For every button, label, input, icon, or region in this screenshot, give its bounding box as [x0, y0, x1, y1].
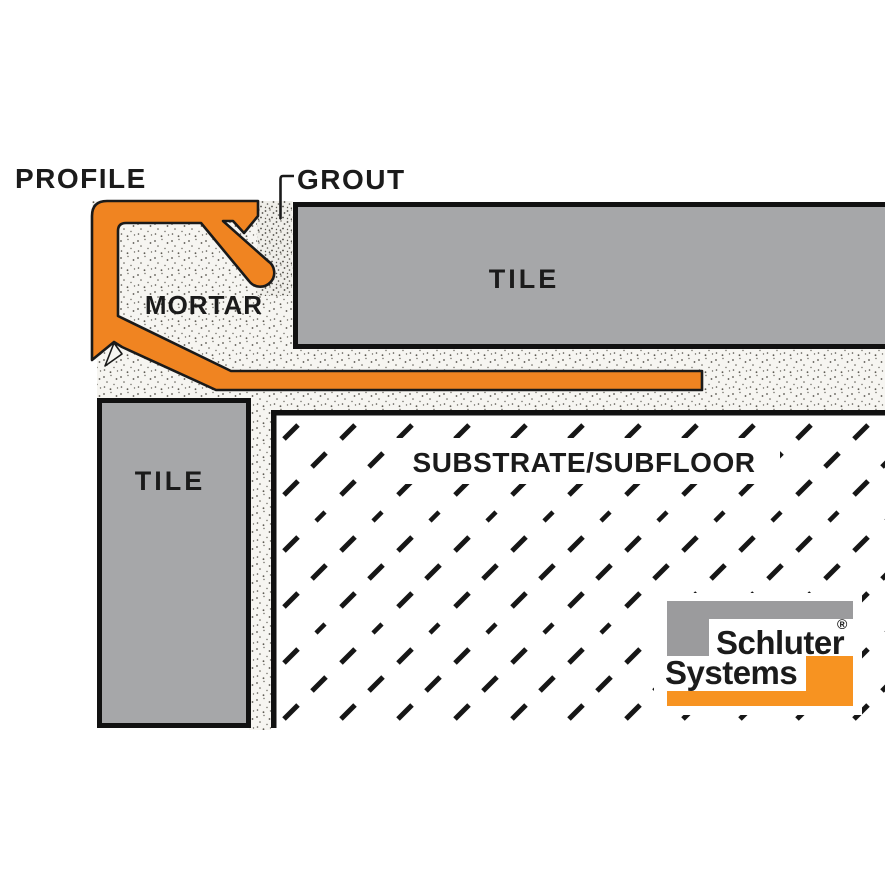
tile-left-label: TILE [135, 466, 206, 496]
tile-top: TILE [296, 205, 885, 347]
schluter-logo: Schluter ® Systems [654, 593, 862, 715]
tile-top-label: TILE [489, 264, 560, 294]
tile-left: TILE [100, 401, 249, 726]
installation-diagram: TILE TILE PROFILE GROUT MORTAR SUBSTRATE… [0, 0, 885, 885]
profile-label: PROFILE [15, 163, 147, 194]
grout-label: GROUT [297, 164, 406, 195]
logo-text-line2: Systems [665, 654, 797, 691]
diagram-canvas: TILE TILE PROFILE GROUT MORTAR SUBSTRATE… [0, 0, 885, 885]
logo-registered-mark: ® [837, 616, 848, 632]
substrate-label: SUBSTRATE/SUBFLOOR [413, 447, 756, 478]
mortar-label: MORTAR [145, 290, 263, 320]
